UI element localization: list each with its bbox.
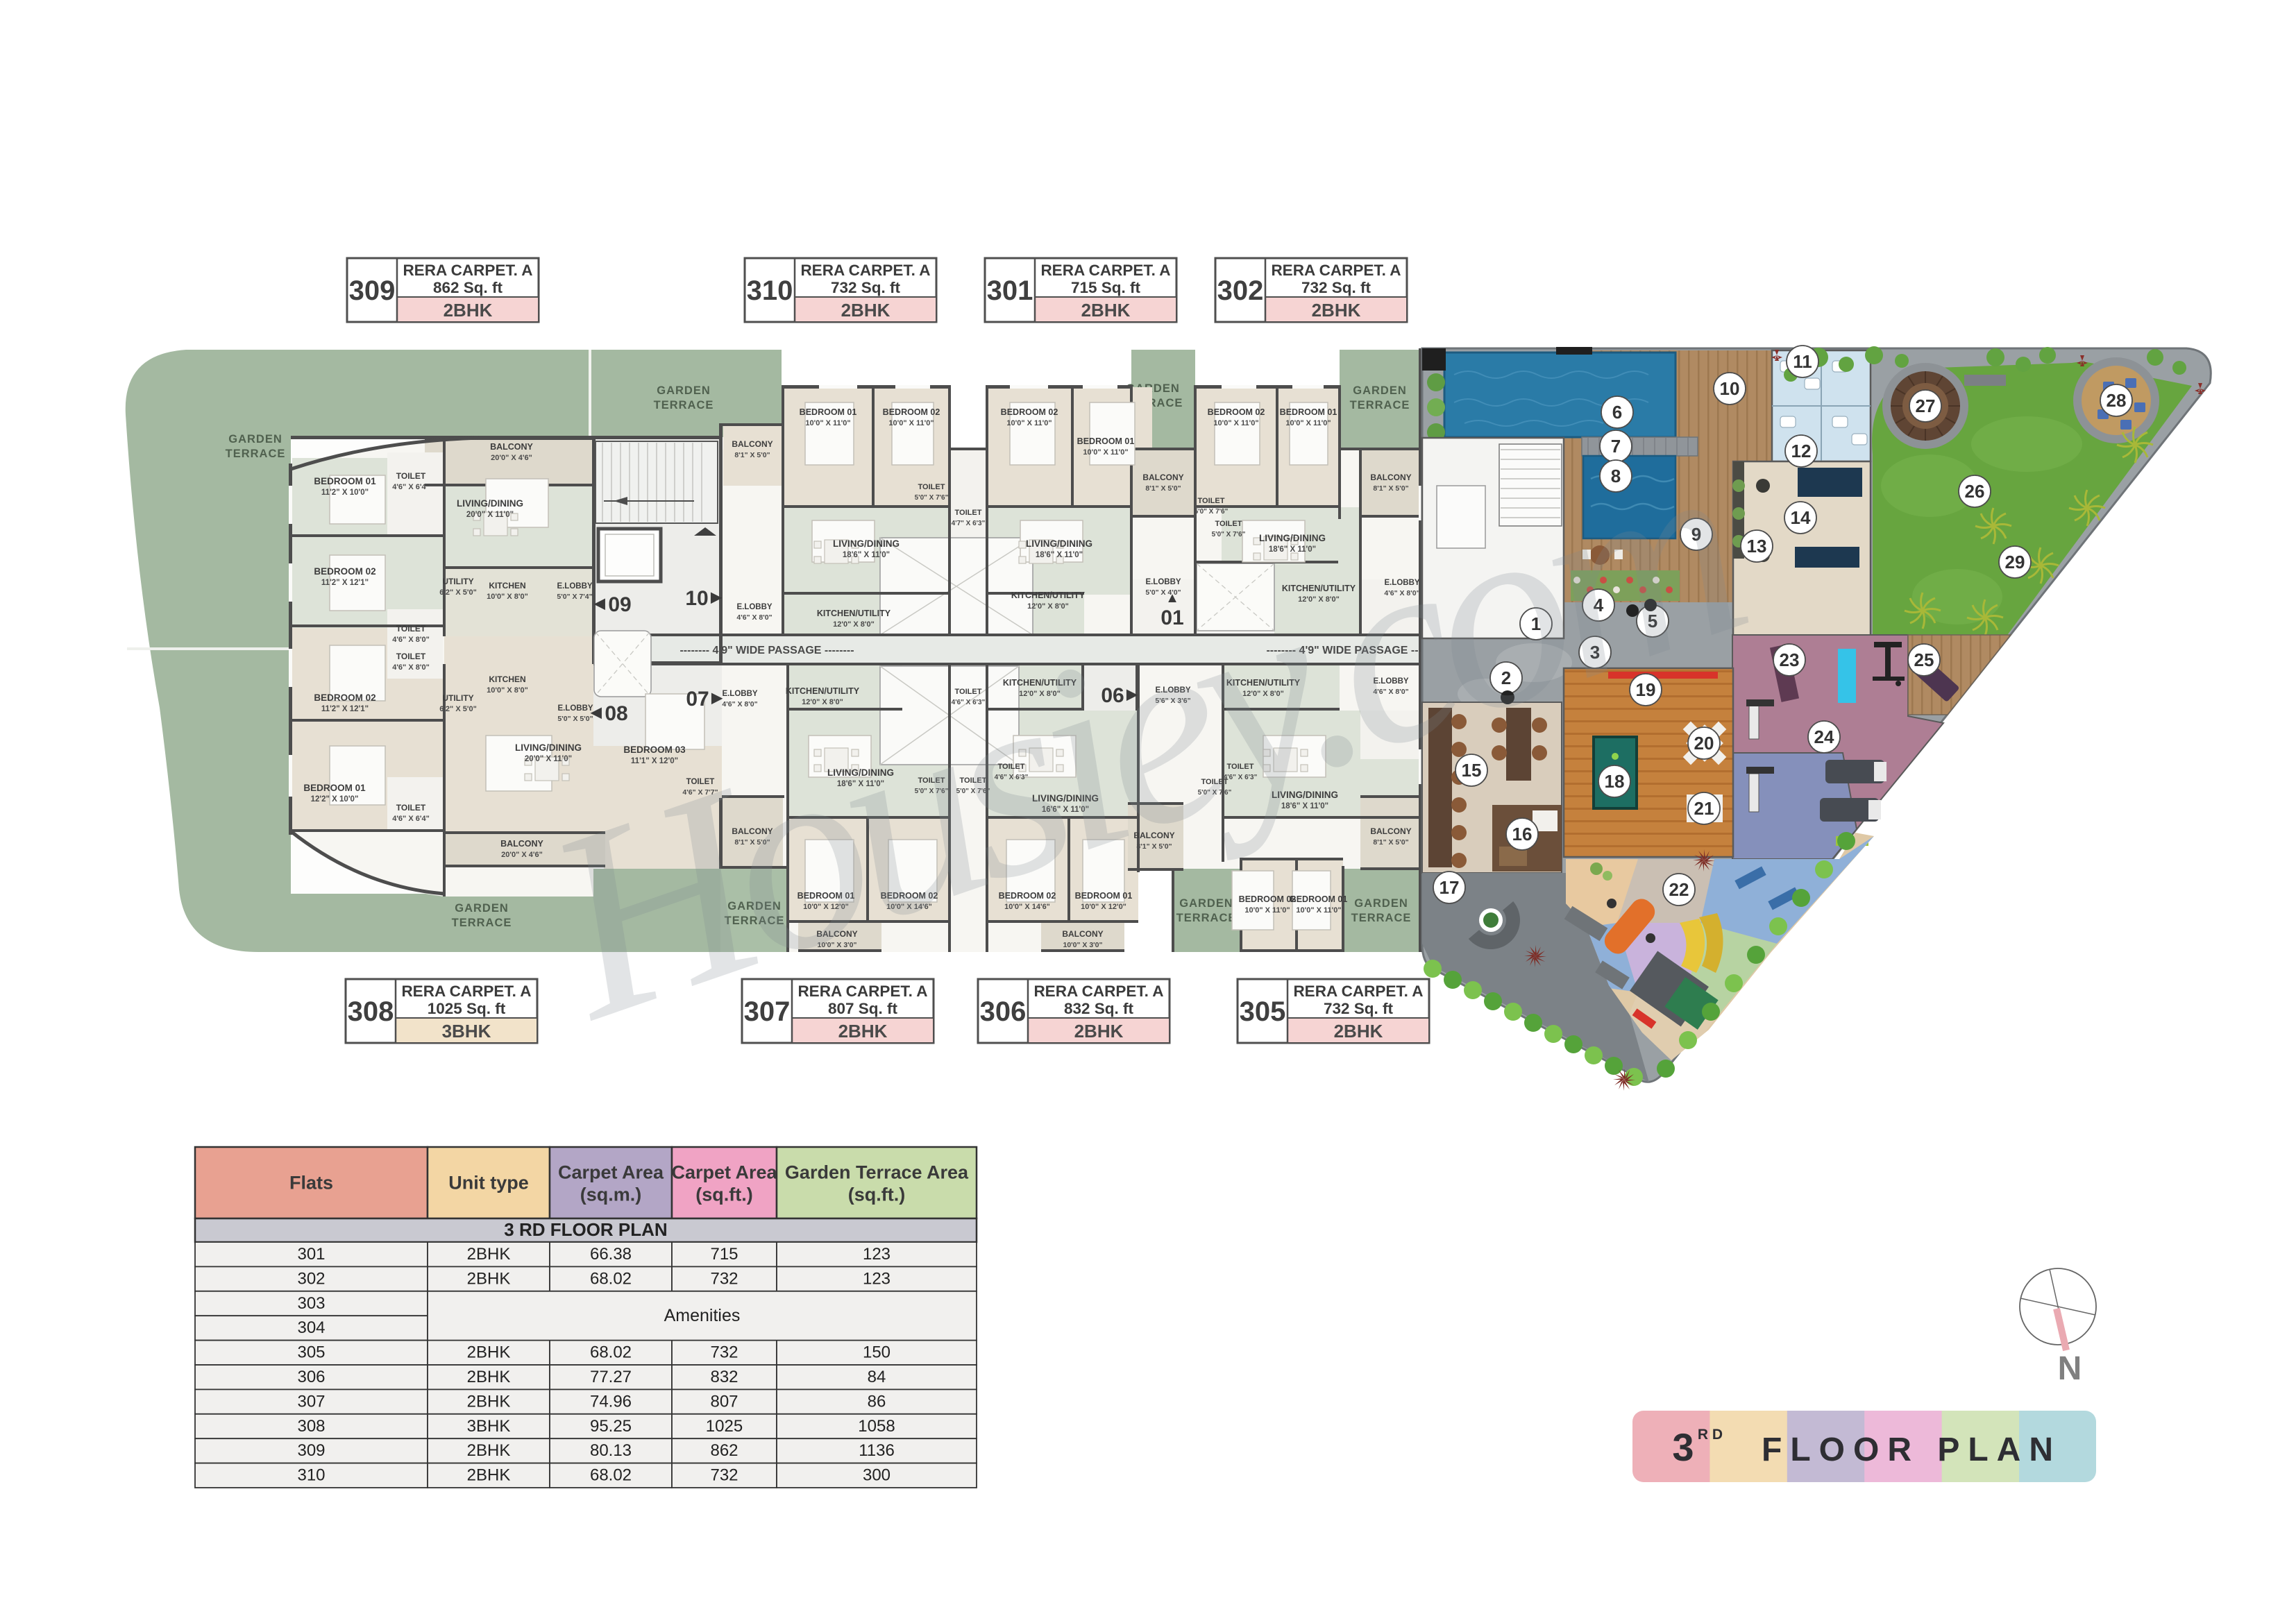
svg-text:TOILET: TOILET — [396, 652, 426, 661]
svg-text:E.LOBBY: E.LOBBY — [557, 704, 593, 713]
svg-text:305: 305 — [1240, 996, 1286, 1027]
svg-text:302: 302 — [1217, 275, 1264, 306]
svg-text:18: 18 — [1605, 771, 1625, 792]
svg-text:25: 25 — [1914, 649, 1934, 670]
svg-text:RERA CARPET. A: RERA CARPET. A — [800, 262, 930, 279]
svg-text:(sq.ft.): (sq.ft.) — [695, 1184, 752, 1205]
svg-text:4'7" X 6'3": 4'7" X 6'3" — [952, 520, 986, 527]
svg-text:E.LOBBY: E.LOBBY — [722, 690, 757, 698]
svg-text:Garden Terrace Area: Garden Terrace Area — [785, 1162, 969, 1183]
svg-text:4'6" X 8'0": 4'6" X 8'0" — [722, 700, 757, 708]
svg-text:TOILET: TOILET — [1215, 520, 1242, 528]
svg-text:862 Sq. ft: 862 Sq. ft — [433, 279, 503, 296]
svg-text:732 Sq. ft: 732 Sq. ft — [831, 279, 901, 296]
svg-text:302: 302 — [297, 1269, 325, 1288]
svg-text:TERRACE: TERRACE — [1350, 399, 1410, 411]
svg-text:E.LOBBY: E.LOBBY — [736, 603, 772, 611]
svg-text:10'0" X 11'0": 10'0" X 11'0" — [805, 419, 850, 427]
svg-text:732 Sq. ft: 732 Sq. ft — [1324, 1000, 1394, 1017]
svg-text:20: 20 — [1694, 733, 1714, 754]
svg-text:77.27: 77.27 — [590, 1368, 632, 1386]
svg-text:68.02: 68.02 — [590, 1343, 632, 1362]
svg-text:BALCONY: BALCONY — [1370, 473, 1411, 482]
svg-text:2BHK: 2BHK — [841, 300, 890, 321]
svg-text:832: 832 — [710, 1368, 738, 1386]
svg-text:310: 310 — [297, 1466, 325, 1485]
svg-text:18'6" X 11'0": 18'6" X 11'0" — [1036, 551, 1083, 559]
svg-text:303: 303 — [297, 1294, 325, 1313]
svg-text:10'0" X 11'0": 10'0" X 11'0" — [888, 419, 934, 427]
svg-text:2BHK: 2BHK — [1074, 1021, 1124, 1042]
svg-text:BEDROOM 02: BEDROOM 02 — [1001, 407, 1058, 417]
svg-text:TERRACE: TERRACE — [1351, 912, 1412, 924]
svg-text:KITCHEN/UTILITY: KITCHEN/UTILITY — [817, 609, 891, 618]
svg-text:4'6" X 6'4": 4'6" X 6'4" — [392, 483, 430, 491]
svg-text:◀: ◀ — [593, 596, 605, 611]
svg-text:KITCHEN: KITCHEN — [489, 674, 525, 684]
svg-text:5'0" X 7'4": 5'0" X 7'4" — [557, 593, 592, 601]
svg-text:2BHK: 2BHK — [444, 300, 493, 321]
svg-text:24: 24 — [1814, 726, 1834, 747]
svg-text:2BHK: 2BHK — [467, 1269, 511, 1288]
svg-text:310: 310 — [747, 275, 793, 306]
svg-text:BALCONY: BALCONY — [1062, 929, 1103, 939]
svg-text:8'1" X 5'0": 8'1" X 5'0" — [734, 451, 770, 459]
svg-text:21: 21 — [1694, 798, 1714, 819]
svg-text:307: 307 — [297, 1392, 325, 1411]
svg-text:5'0" X 7'6": 5'0" X 7'6" — [915, 494, 949, 502]
svg-text:3BHK: 3BHK — [467, 1417, 511, 1436]
svg-text:5'0" X 7'6": 5'0" X 7'6" — [1195, 508, 1229, 516]
svg-text:715 Sq. ft: 715 Sq. ft — [1071, 279, 1141, 296]
svg-text:4'6" X 6'4": 4'6" X 6'4" — [392, 815, 430, 823]
svg-text:305: 305 — [297, 1343, 325, 1362]
svg-text:◀: ◀ — [590, 705, 602, 720]
svg-text:84: 84 — [868, 1368, 886, 1386]
svg-text:6'2" X 5'0": 6'2" X 5'0" — [439, 588, 477, 597]
svg-text:74.96: 74.96 — [590, 1392, 632, 1411]
svg-text:GARDEN: GARDEN — [455, 902, 509, 915]
svg-text:11'2" X 12'1": 11'2" X 12'1" — [321, 579, 369, 587]
svg-text:BEDROOM 02: BEDROOM 02 — [314, 566, 375, 577]
svg-text:RERA CARPET. A: RERA CARPET. A — [1293, 983, 1423, 1000]
svg-text:(sq.ft.): (sq.ft.) — [848, 1184, 905, 1205]
svg-text:28: 28 — [2107, 390, 2127, 411]
svg-text:BEDROOM 01: BEDROOM 01 — [314, 476, 376, 486]
svg-text:08: 08 — [605, 702, 627, 725]
svg-text:309: 309 — [297, 1441, 325, 1460]
svg-text:1025 Sq. ft: 1025 Sq. ft — [428, 1000, 506, 1017]
svg-text:2BHK: 2BHK — [838, 1021, 888, 1042]
svg-text:3: 3 — [1672, 1425, 1694, 1469]
svg-text:RERA CARPET. A: RERA CARPET. A — [401, 983, 531, 1000]
svg-text:16: 16 — [1512, 824, 1533, 844]
svg-text:UTILITY: UTILITY — [442, 693, 473, 703]
svg-text:715: 715 — [710, 1245, 738, 1264]
svg-text:732: 732 — [710, 1343, 738, 1362]
svg-text:10'0" X 11'0": 10'0" X 11'0" — [1285, 419, 1331, 427]
svg-text:150: 150 — [863, 1343, 890, 1362]
svg-text:KITCHEN/UTILITY: KITCHEN/UTILITY — [1011, 590, 1086, 600]
svg-text:07: 07 — [686, 688, 709, 711]
svg-text:20'0" X 4'6": 20'0" X 4'6" — [491, 454, 532, 462]
svg-text:3BHK: 3BHK — [442, 1021, 491, 1042]
svg-text:Carpet Area: Carpet Area — [558, 1162, 664, 1183]
svg-text:306: 306 — [980, 996, 1027, 1027]
svg-text:5'0" X 7'6": 5'0" X 7'6" — [1212, 531, 1246, 538]
svg-text:10'0" X 3'0": 10'0" X 3'0" — [1063, 941, 1103, 949]
svg-text:BEDROOM 01: BEDROOM 01 — [800, 407, 857, 417]
svg-text:RERA CARPET. A: RERA CARPET. A — [1271, 262, 1401, 279]
svg-text:▶: ▶ — [711, 690, 723, 706]
svg-text:BEDROOM 01: BEDROOM 01 — [1077, 436, 1135, 446]
svg-text:807 Sq. ft: 807 Sq. ft — [828, 1000, 898, 1017]
svg-text:300: 300 — [863, 1466, 890, 1485]
svg-text:Amenities: Amenities — [664, 1306, 741, 1325]
svg-text:2BHK: 2BHK — [1312, 300, 1361, 321]
svg-text:12'0" X 8'0": 12'0" X 8'0" — [833, 620, 875, 629]
svg-text:LIVING/DINING: LIVING/DINING — [1026, 538, 1092, 549]
svg-text:BALCONY: BALCONY — [732, 439, 773, 449]
svg-text:2BHK: 2BHK — [467, 1392, 511, 1411]
svg-text:732 Sq. ft: 732 Sq. ft — [1301, 279, 1371, 296]
svg-text:309: 309 — [349, 275, 396, 306]
svg-text:2BHK: 2BHK — [467, 1343, 511, 1362]
svg-text:4'6" X 8'0": 4'6" X 8'0" — [392, 636, 430, 644]
svg-text:86: 86 — [868, 1392, 886, 1411]
svg-text:1025: 1025 — [706, 1417, 743, 1436]
svg-text:GARDEN: GARDEN — [1179, 897, 1233, 910]
svg-text:LIVING/DINING: LIVING/DINING — [833, 538, 900, 549]
svg-text:2BHK: 2BHK — [467, 1441, 511, 1460]
svg-text:123: 123 — [863, 1269, 890, 1288]
svg-text:68.02: 68.02 — [590, 1466, 632, 1485]
svg-text:732: 732 — [710, 1269, 738, 1288]
svg-text:95.25: 95.25 — [590, 1417, 632, 1436]
svg-text:Unit type: Unit type — [448, 1173, 529, 1193]
svg-text:12'2" X 10'0": 12'2" X 10'0" — [311, 795, 359, 804]
svg-text:732: 732 — [710, 1466, 738, 1485]
svg-text:308: 308 — [348, 996, 394, 1027]
svg-text:27: 27 — [1916, 396, 1936, 416]
svg-text:10'0" X 11'0": 10'0" X 11'0" — [1296, 906, 1341, 915]
svg-text:26: 26 — [1965, 481, 1985, 502]
svg-text:RERA CARPET. A: RERA CARPET. A — [403, 262, 532, 279]
svg-text:BEDROOM 02: BEDROOM 02 — [1239, 894, 1297, 904]
svg-text:14: 14 — [1791, 507, 1811, 528]
svg-text:22: 22 — [1669, 879, 1689, 900]
svg-text:3 RD FLOOR PLAN: 3 RD FLOOR PLAN — [504, 1219, 667, 1240]
svg-text:10: 10 — [1720, 378, 1740, 399]
svg-text:BALCONY: BALCONY — [1142, 473, 1183, 482]
svg-text:TOILET: TOILET — [396, 471, 426, 481]
svg-text:12: 12 — [1791, 441, 1812, 461]
svg-text:TOILET: TOILET — [955, 509, 982, 517]
svg-text:GARDEN: GARDEN — [1354, 897, 1408, 910]
svg-text:TERRACE: TERRACE — [226, 448, 286, 460]
svg-text:10: 10 — [685, 587, 708, 610]
svg-text:301: 301 — [987, 275, 1033, 306]
svg-text:UTILITY: UTILITY — [442, 577, 473, 586]
svg-text:11'2" X 10'0": 11'2" X 10'0" — [321, 488, 369, 497]
svg-text:68.02: 68.02 — [590, 1269, 632, 1288]
svg-text:10'0" X 11'0": 10'0" X 11'0" — [1244, 906, 1290, 915]
svg-text:09: 09 — [608, 593, 631, 616]
svg-text:2BHK: 2BHK — [1081, 300, 1131, 321]
svg-text:20'0" X 11'0": 20'0" X 11'0" — [466, 511, 514, 519]
svg-text:BEDROOM 01: BEDROOM 01 — [1290, 894, 1348, 904]
svg-text:306: 306 — [297, 1368, 325, 1386]
svg-text:66.38: 66.38 — [590, 1245, 632, 1264]
svg-text:BALCONY: BALCONY — [1370, 826, 1411, 836]
svg-text:N: N — [2058, 1350, 2082, 1387]
svg-text:6'2" X 5'0": 6'2" X 5'0" — [439, 705, 477, 713]
svg-text:TERRACE: TERRACE — [654, 399, 714, 411]
svg-text:TERRACE: TERRACE — [452, 917, 512, 929]
svg-text:307: 307 — [744, 996, 791, 1027]
svg-text:Carpet Area: Carpet Area — [671, 1162, 777, 1183]
svg-text:308: 308 — [297, 1417, 325, 1436]
svg-text:BEDROOM 02: BEDROOM 02 — [314, 692, 375, 703]
svg-text:TOILET: TOILET — [1198, 497, 1225, 505]
svg-text:2BHK: 2BHK — [467, 1368, 511, 1386]
svg-text:10'0" X 11'0": 10'0" X 11'0" — [1083, 448, 1128, 457]
svg-text:4'6" X 8'0": 4'6" X 8'0" — [736, 613, 772, 622]
svg-text:LIVING/DINING: LIVING/DINING — [457, 498, 523, 509]
svg-text:8'1" X 5'0": 8'1" X 5'0" — [1145, 484, 1181, 493]
svg-text:10'0" X 11'0": 10'0" X 11'0" — [1213, 419, 1258, 427]
svg-text:RERA CARPET. A: RERA CARPET. A — [1040, 262, 1170, 279]
svg-text:20'0" X 11'0": 20'0" X 11'0" — [525, 755, 572, 763]
svg-text:2BHK: 2BHK — [467, 1245, 511, 1264]
svg-text:5'0" X 5'0": 5'0" X 5'0" — [557, 715, 593, 723]
svg-text:-------- 4'9" WIDE PASSAGE ---: -------- 4'9" WIDE PASSAGE -------- — [679, 645, 854, 656]
svg-text:23: 23 — [1780, 649, 1800, 670]
svg-text:10'0" X 11'0": 10'0" X 11'0" — [1006, 419, 1052, 427]
svg-text:Flats: Flats — [289, 1173, 333, 1193]
svg-text:832 Sq. ft: 832 Sq. ft — [1064, 1000, 1134, 1017]
svg-text:TOILET: TOILET — [396, 624, 426, 634]
svg-text:807: 807 — [710, 1392, 738, 1411]
svg-text:301: 301 — [297, 1245, 325, 1264]
svg-text:13: 13 — [1747, 536, 1767, 556]
svg-text:GARDEN: GARDEN — [1353, 384, 1407, 397]
svg-text:304: 304 — [297, 1318, 325, 1337]
svg-text:2BHK: 2BHK — [1334, 1021, 1383, 1042]
svg-text:(sq.m.): (sq.m.) — [580, 1184, 642, 1205]
svg-text:1058: 1058 — [858, 1417, 895, 1436]
svg-text:BEDROOM 01: BEDROOM 01 — [1280, 407, 1337, 417]
svg-text:KITCHEN: KITCHEN — [489, 581, 525, 590]
svg-text:1136: 1136 — [859, 1441, 895, 1460]
svg-text:8'1" X 5'0": 8'1" X 5'0" — [1373, 838, 1408, 847]
svg-text:29: 29 — [2005, 552, 2025, 572]
svg-text:▶: ▶ — [710, 590, 723, 605]
svg-text:BALCONY: BALCONY — [490, 442, 533, 452]
svg-text:862: 862 — [710, 1441, 738, 1460]
svg-text:LIVING/DINING: LIVING/DINING — [515, 742, 582, 753]
svg-text:FLOOR PLAN: FLOOR PLAN — [1762, 1431, 2061, 1468]
svg-text:18'6" X 11'0": 18'6" X 11'0" — [843, 551, 890, 559]
svg-text:17: 17 — [1440, 877, 1460, 898]
svg-text:11: 11 — [1793, 351, 1812, 372]
svg-text:TERRACE: TERRACE — [1176, 912, 1237, 924]
svg-text:10'0" X 8'0": 10'0" X 8'0" — [487, 686, 528, 695]
svg-text:2BHK: 2BHK — [467, 1466, 511, 1485]
svg-text:11'2" X 12'1": 11'2" X 12'1" — [321, 705, 369, 713]
svg-text:RERA CARPET. A: RERA CARPET. A — [797, 983, 927, 1000]
svg-text:80.13: 80.13 — [590, 1441, 632, 1460]
svg-text:TOILET: TOILET — [396, 803, 426, 813]
svg-text:BEDROOM 02: BEDROOM 02 — [883, 407, 940, 417]
svg-text:R D: R D — [1698, 1427, 1723, 1443]
svg-text:TOILET: TOILET — [918, 483, 945, 491]
svg-text:10'0" X 8'0": 10'0" X 8'0" — [487, 593, 528, 601]
svg-text:GARDEN: GARDEN — [657, 384, 711, 397]
svg-text:GARDEN: GARDEN — [228, 433, 282, 445]
svg-text:RERA CARPET. A: RERA CARPET. A — [1033, 983, 1163, 1000]
svg-text:BEDROOM 02: BEDROOM 02 — [1208, 407, 1265, 417]
svg-text:E.LOBBY: E.LOBBY — [557, 582, 592, 590]
svg-text:BEDROOM 01: BEDROOM 01 — [303, 783, 366, 793]
svg-text:4'6" X 8'0": 4'6" X 8'0" — [392, 663, 430, 672]
svg-text:123: 123 — [863, 1245, 890, 1264]
